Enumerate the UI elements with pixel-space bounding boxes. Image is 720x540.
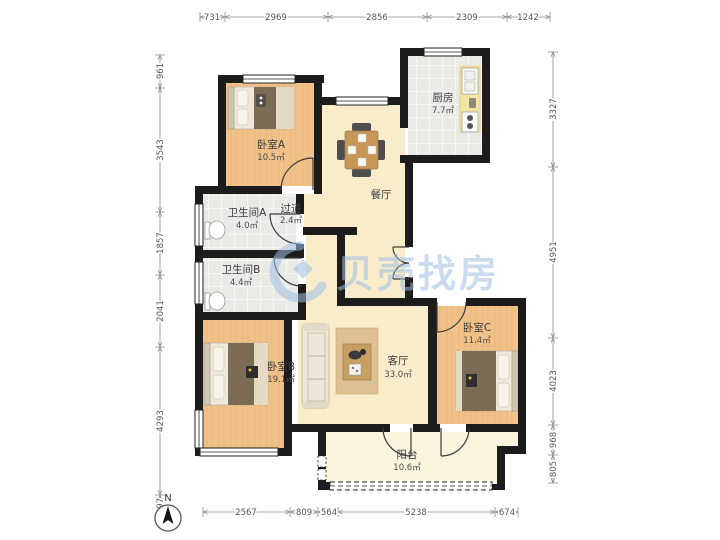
bath-b-area: 4.4㎡ <box>230 278 253 288</box>
wall <box>345 298 437 306</box>
wall <box>466 424 526 432</box>
wall <box>195 312 306 320</box>
dim-right-3: 968 <box>549 432 559 448</box>
coffee-table-icon <box>336 328 378 394</box>
bed-a-icon <box>228 87 294 129</box>
window <box>424 48 462 56</box>
dim-bottom-2: 564 <box>321 508 337 518</box>
living-area: 33.0㎡ <box>384 370 412 380</box>
dim-left-3: 2041 <box>156 300 166 322</box>
hallway-area: 2.4㎡ <box>280 216 303 226</box>
window <box>195 204 203 246</box>
dim-left-1: 3543 <box>156 139 166 161</box>
floor-plan-canvas: 卧室A 10.5㎡ 厨房 7.7㎡ 餐厅 过道 2.4㎡ 卫生间A 4.0㎡ 卫… <box>0 0 720 540</box>
bed-b-icon <box>204 343 268 405</box>
bedroom-b-area: 19.1㎡ <box>267 375 295 385</box>
bath-b-label: 卫生间B <box>222 263 261 276</box>
dim-top-0: 731 <box>204 13 220 23</box>
dim-left-4: 4293 <box>156 410 166 432</box>
watermark-text: 贝壳找房 <box>336 252 500 296</box>
wall <box>400 48 408 128</box>
balcony-label: 阳台 <box>397 448 418 461</box>
wall <box>428 298 437 306</box>
dim-top-4: 1242 <box>517 13 539 23</box>
dim-top-2: 2856 <box>366 13 388 23</box>
wall <box>482 48 490 163</box>
bath-a-label: 卫生间A <box>228 206 267 219</box>
wall <box>405 163 413 247</box>
dim-left-2: 1857 <box>156 232 166 254</box>
window <box>243 75 295 83</box>
bed-c-icon <box>456 351 518 411</box>
floor-plan-page: 卧室A 10.5㎡ 厨房 7.7㎡ 餐厅 过道 2.4㎡ 卫生间A 4.0㎡ 卫… <box>0 0 720 540</box>
dim-bottom-1: 809 <box>296 508 312 518</box>
dim-right-4: 805 <box>549 461 559 477</box>
bath-a-area: 4.0㎡ <box>236 221 259 231</box>
window <box>200 448 278 456</box>
wall <box>218 75 226 194</box>
dimension-left: 961 3543 1857 2041 4293 597 <box>155 55 166 517</box>
dim-bottom-3: 5238 <box>405 508 427 518</box>
dimension-bottom: 2567 809 564 5238 674 <box>203 507 518 518</box>
kitchen-area: 7.7㎡ <box>432 106 455 116</box>
dining-label: 餐厅 <box>371 188 392 201</box>
dim-bottom-0: 2567 <box>235 508 257 518</box>
dim-bottom-4: 674 <box>499 508 515 518</box>
wall <box>466 298 526 306</box>
hallway-label: 过道 <box>281 202 302 215</box>
balcony-floor <box>326 432 518 482</box>
wall <box>428 306 437 424</box>
dim-right-0: 3327 <box>549 98 559 120</box>
hallway-floor <box>304 194 337 227</box>
window <box>195 262 203 304</box>
wall <box>195 186 282 194</box>
dim-right-1: 4951 <box>549 241 559 263</box>
bedroom-a-area: 10.5㎡ <box>257 153 285 163</box>
dim-left-0: 961 <box>156 63 166 79</box>
wall <box>497 446 526 454</box>
wall <box>284 424 390 432</box>
dim-top-3: 2309 <box>456 13 478 23</box>
window <box>336 97 388 105</box>
kitchen-counter-icon <box>460 66 480 132</box>
toilet-b-icon <box>205 292 225 310</box>
window <box>195 410 203 448</box>
bedroom-b-label: 卧室B <box>267 360 295 373</box>
kitchen-label: 厨房 <box>433 91 454 104</box>
wall <box>314 75 322 194</box>
compass-north-label: N <box>164 493 171 504</box>
bedroom-c-label: 卧室C <box>463 321 491 334</box>
wall <box>518 298 526 430</box>
wall <box>303 227 357 235</box>
dimension-right: 3327 4951 4023 968 805 <box>548 52 559 483</box>
balcony-area: 10.6㎡ <box>393 463 421 473</box>
wall <box>428 424 440 432</box>
bedroom-c-area: 11.4㎡ <box>463 336 491 346</box>
dimension-top: 731 2969 2856 2309 1242 <box>200 12 550 23</box>
dim-top-1: 2969 <box>265 13 287 23</box>
wall <box>400 155 490 163</box>
living-label: 客厅 <box>388 354 409 367</box>
bedroom-a-label: 卧室A <box>257 138 286 151</box>
dim-right-2: 4023 <box>549 370 559 392</box>
sofa-icon <box>302 324 329 408</box>
toilet-a-icon <box>205 221 225 239</box>
